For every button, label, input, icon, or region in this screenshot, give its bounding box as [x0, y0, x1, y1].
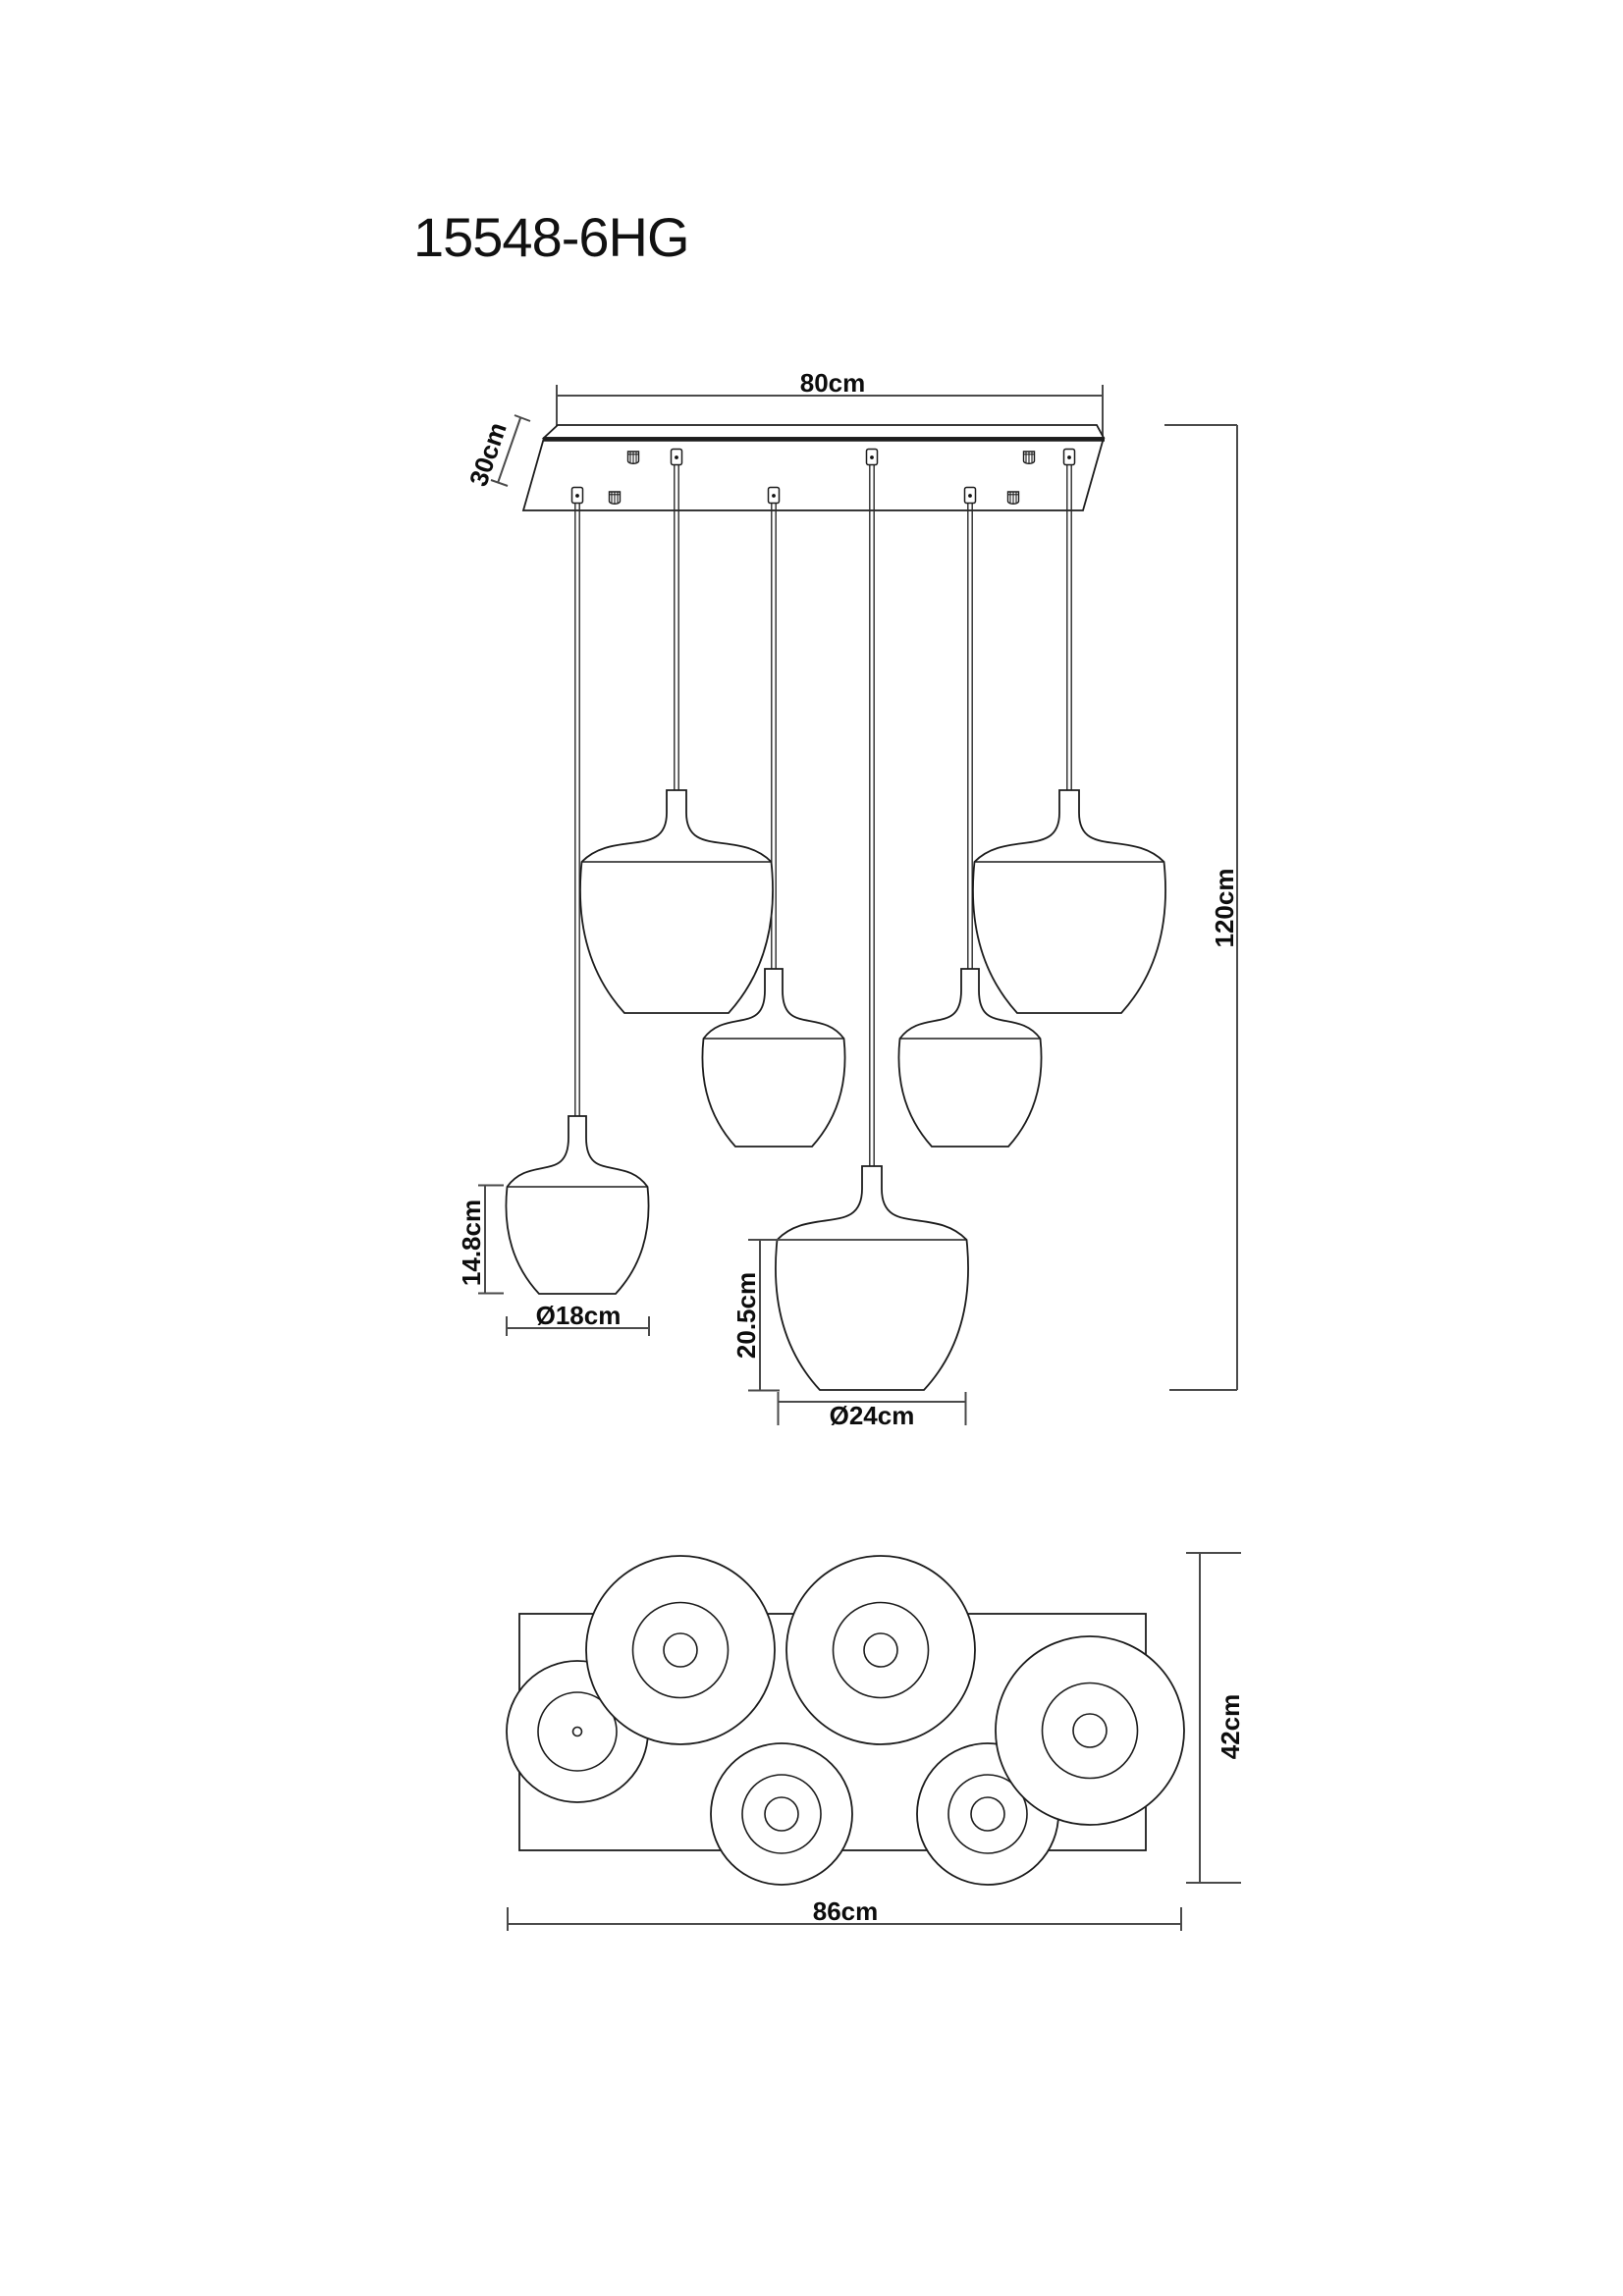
top-view: 86cm 42cm [507, 1553, 1245, 1931]
dimension-small-shade-diameter: Ø18cm [507, 1301, 649, 1336]
dimension-large-shade-height: 20.5cm [731, 1240, 780, 1391]
suspension-cord-1 [575, 503, 579, 1118]
dimension-small-shade-height: 14.8cm [457, 1186, 504, 1294]
shade-circle-large-3 [996, 1636, 1184, 1825]
cord-grip-1 [572, 488, 583, 504]
pendant-shade-large-3 [776, 1166, 968, 1390]
large-shade-diameter-label: Ø24cm [830, 1401, 915, 1430]
mounting-screw-1 [610, 492, 621, 504]
shade-circle-large-1 [586, 1556, 775, 1744]
dimension-canopy-depth: 30cm [463, 415, 530, 490]
cord-grip-2 [672, 450, 682, 465]
technical-drawing-page: 15548-6HG 80cm 30cm [0, 0, 1623, 2296]
dimension-large-shade-diameter: Ø24cm [779, 1392, 966, 1430]
mounting-screw-3 [1008, 492, 1019, 504]
cord-grip-6 [1064, 450, 1075, 465]
suspension-cord-6 [1067, 463, 1071, 792]
small-shade-height-label: 14.8cm [457, 1200, 486, 1286]
suspension-cord-2 [675, 463, 678, 792]
canopy-top-face [544, 425, 1104, 438]
dimension-overall-height: 120cm [1164, 425, 1239, 1390]
suspension-cord-4 [870, 463, 874, 1168]
large-shade-height-label: 20.5cm [731, 1272, 761, 1359]
side-view: 80cm 30cm [457, 368, 1239, 1430]
pendant-shade-large-2 [973, 790, 1165, 1013]
canopy-width-label: 80cm [800, 368, 866, 398]
cord-grip-5 [965, 488, 976, 504]
overall-width-label: 86cm [813, 1896, 879, 1926]
canopy-depth-label: 30cm [463, 418, 513, 490]
overall-height-label: 120cm [1210, 869, 1239, 948]
small-shade-diameter-label: Ø18cm [536, 1301, 622, 1330]
dimension-overall-depth: 42cm [1186, 1553, 1245, 1883]
mounting-screw-2 [628, 452, 639, 463]
mounting-screw-4 [1024, 452, 1035, 463]
cord-grip-3 [769, 488, 780, 504]
dimension-overall-width: 86cm [508, 1896, 1181, 1931]
pendant-shade-small-3 [506, 1116, 648, 1294]
pendant-shade-large-1 [580, 790, 773, 1013]
cord-grip-4 [867, 450, 878, 465]
overall-depth-label: 42cm [1216, 1694, 1245, 1760]
suspension-cord-5 [968, 503, 972, 971]
shade-circle-small-2 [711, 1743, 852, 1885]
shade-circle-large-2 [786, 1556, 975, 1744]
model-number-title: 15548-6HG [413, 206, 689, 268]
